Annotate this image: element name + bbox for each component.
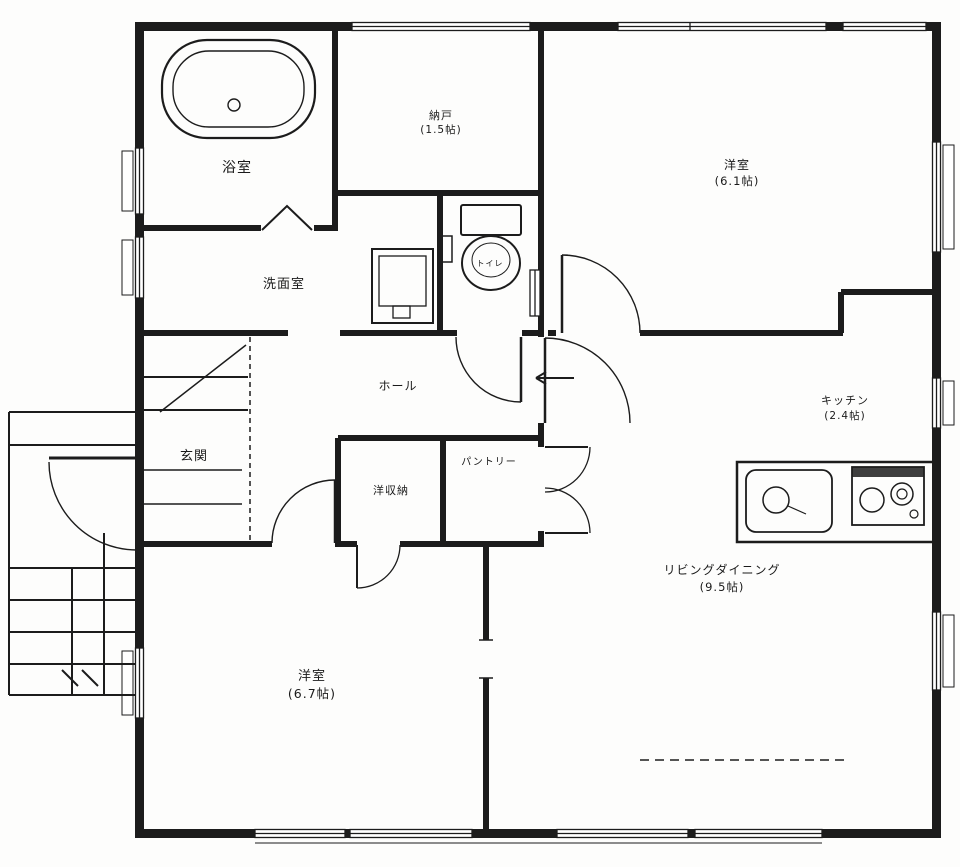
bathtub [162,40,315,138]
door-pantry-lower [545,488,590,533]
window-right-ldk [933,612,955,690]
entry-arrow [536,372,574,384]
window-bottom-bedroom-a [255,830,345,838]
door-hall-ldk [545,338,630,423]
vanity-basin [372,249,433,323]
window-top-bedroom [618,23,826,31]
room-label-bedroom-ne: 洋室 [724,157,750,172]
door-pantry-upper [545,447,590,492]
opening-bedroom-ldk [479,640,493,678]
door-bedroom-sw [272,480,335,543]
room-label-bathroom: 浴室 [222,159,252,176]
door-toilet [456,337,521,402]
entrance-steps [143,470,242,504]
window-toilet-niche [530,270,540,316]
window-bottom-bedroom-b [350,830,472,838]
window-left-washroom [122,237,144,298]
room-label-living-dining: リビングダイニング [663,562,780,577]
door-entrance [49,458,137,550]
room-label-pantry: パントリー [461,456,517,468]
room-size-storage: (1.5帖) [420,123,461,136]
room-label-kitchen: キッチン [821,394,869,407]
interior-walls [137,26,936,833]
window-right-bedroom [933,142,955,252]
room-label-bedroom-sw: 洋室 [298,668,326,684]
toilet-fixture [441,205,521,290]
room-label-washroom: 洗面室 [263,276,305,292]
room-label-hall: ホール [378,379,417,393]
door-closet [357,545,400,588]
room-size-bedroom-sw: (6.7帖) [288,686,336,701]
room-label-storage: 納戸 [429,109,453,122]
door-bathroom-folding [262,206,312,230]
room-size-living-dining: (9.5帖) [700,580,745,594]
room-size-kitchen: (2.4帖) [824,409,865,422]
window-bottom-ldk-b [695,830,822,838]
room-label-closet: 洋収納 [373,483,409,497]
room-label-toilet: トイレ [477,259,504,268]
window-bottom-ldk-a [557,830,688,838]
floor-plan: 浴室 納戸 (1.5帖) 洋室 (6.1帖) 洗面室 トイレ ホール 玄関 洋収… [0,0,960,867]
window-top-storage [352,23,530,31]
window-right-kitchen [933,378,955,428]
floor-plan-svg: 浴室 納戸 (1.5帖) 洋室 (6.1帖) 洗面室 トイレ ホール 玄関 洋収… [0,0,960,867]
door-bedroom-ne [562,255,640,333]
stairs [141,337,250,544]
window-left-bathroom [122,148,144,214]
room-size-bedroom-ne: (6.1帖) [715,174,760,188]
room-label-entrance: 玄関 [180,449,208,464]
window-top-corner [843,23,926,31]
porch-steps [9,412,135,695]
kitchen-counter [737,462,935,542]
window-left-bedroom [122,648,144,718]
room-labels: 浴室 納戸 (1.5帖) 洋室 (6.1帖) 洗面室 トイレ ホール 玄関 洋収… [180,109,869,701]
